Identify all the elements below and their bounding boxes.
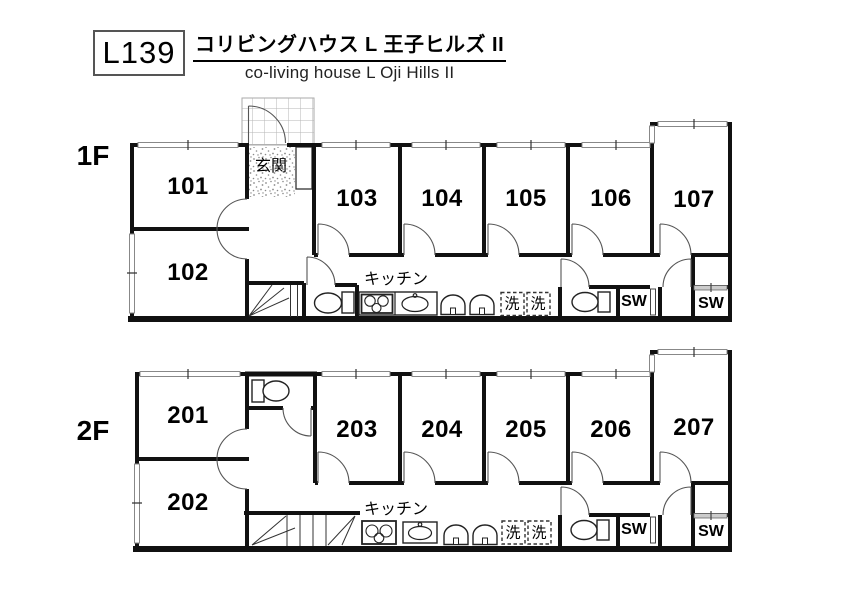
room-label-102: 102: [167, 261, 209, 285]
washbasin-icons-1f: [441, 295, 494, 315]
shower-label-1f-a: SW: [621, 294, 647, 310]
entrance-label: 玄関: [255, 159, 287, 175]
room-label-204: 204: [421, 418, 463, 442]
washer-label-1f-a: 洗: [504, 297, 519, 312]
floor-label-2f: 2F: [77, 417, 110, 445]
washbasin-icons-2f: [444, 525, 497, 545]
room-label-202: 202: [167, 491, 209, 515]
room-label-104: 104: [421, 187, 463, 211]
floor-label-1f: 1F: [77, 142, 110, 170]
sink-icon-1f: [402, 294, 428, 312]
washer-label-2f-b: 洗: [531, 526, 546, 541]
walls-2f: [133, 350, 732, 549]
room-label-203: 203: [336, 418, 378, 442]
shower-label-1f-b: SW: [698, 296, 724, 312]
shoe-cabinet: [296, 147, 312, 189]
room-label-206: 206: [590, 418, 632, 442]
washer-label-2f-a: 洗: [505, 526, 520, 541]
room-label-103: 103: [336, 187, 378, 211]
room-label-107: 107: [673, 188, 715, 212]
toilet-icon-1f-right: [572, 292, 610, 312]
kitchen-counter-1f: [359, 292, 437, 315]
room-label-106: 106: [590, 187, 632, 211]
room-label-207: 207: [673, 416, 715, 440]
washer-label-1f-b: 洗: [530, 297, 545, 312]
room-label-101: 101: [167, 175, 209, 199]
toilet-icon-2f-top: [252, 380, 289, 402]
toilet-icon-2f-right: [571, 520, 609, 540]
stairs-icon-2f: [252, 515, 355, 546]
shower-label-2f-a: SW: [621, 522, 647, 538]
stairs-icon-1f: [249, 285, 298, 317]
sink-icon-2f: [403, 522, 437, 543]
room-label-105: 105: [505, 187, 547, 211]
toilet-icon-1f-left: [315, 292, 355, 313]
kitchen-label-2f: キッチン: [364, 502, 428, 518]
kitchen-counter-2f: [362, 521, 437, 544]
kitchen-label-1f: キッチン: [364, 272, 428, 288]
shower-label-2f-b: SW: [698, 524, 724, 540]
floor-plan-page: L139 コリビングハウス L 王子ヒルズ II co-living house…: [0, 0, 842, 595]
floor2-plan: [132, 347, 732, 549]
room-label-201: 201: [167, 404, 209, 428]
stove-icon-2f: [362, 521, 396, 544]
room-label-205: 205: [505, 418, 547, 442]
